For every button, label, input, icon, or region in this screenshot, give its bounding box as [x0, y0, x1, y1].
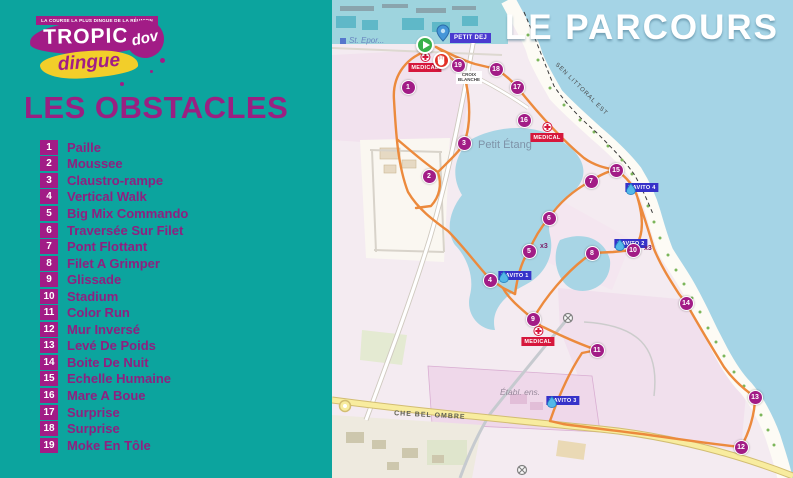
obstacle-name: Traversée Sur Filet [67, 223, 183, 238]
poster: LA COURSE LA PLUS DINGUE DE LA RÉUNION T… [0, 0, 793, 478]
obstacle-number-badge: 12 [40, 322, 58, 337]
course-marker-12: 12 [734, 440, 749, 455]
course-marker-11: 11 [590, 343, 605, 358]
obstacle-item-8: 8Filet A Grimper [40, 255, 188, 272]
obstacle-item-17: 17Surprise [40, 404, 188, 421]
location-pin-icon [436, 24, 450, 42]
obstacle-name: Surprise [67, 421, 120, 436]
obstacle-name: Pont Flottant [67, 239, 147, 254]
obstacle-number-badge: 3 [40, 173, 58, 188]
obstacle-item-6: 6Traversée Sur Filet [40, 222, 188, 239]
ravito-badge-3: RAVITO 3 [546, 396, 579, 405]
medical-cross-icon [533, 326, 543, 336]
medical-badge-2: MEDICAL [530, 122, 563, 142]
course-marker-10: 10 [626, 243, 641, 258]
obstacle-number-badge: 19 [40, 438, 58, 453]
obstacle-item-9: 9Glissade [40, 271, 188, 288]
stop-hand-icon [433, 52, 450, 69]
course-marker-16: 16 [517, 113, 532, 128]
poi-square-icon [340, 38, 346, 44]
obstacle-name: Paille [67, 140, 101, 155]
obstacle-name: Moussee [67, 156, 123, 171]
medical-badge-3: MEDICAL [521, 326, 554, 346]
ravito-badge-1: RAVITO 1 [498, 271, 531, 280]
course-marker-13: 13 [748, 390, 763, 405]
obstacle-name: Echelle Humaine [67, 371, 171, 386]
obstacle-name: Surprise [67, 405, 120, 420]
course-marker-18: 18 [489, 62, 504, 77]
obstacle-number-badge: 2 [40, 156, 58, 171]
course-marker-5: 5 [522, 244, 537, 259]
obstacle-name: Color Run [67, 305, 130, 320]
obstacles-panel: LA COURSE LA PLUS DINGUE DE LA RÉUNION T… [0, 0, 332, 478]
obstacle-item-10: 10Stadium [40, 288, 188, 305]
obstacle-number-badge: 8 [40, 256, 58, 271]
obstacle-number-badge: 14 [40, 355, 58, 370]
medical-label: MEDICAL [530, 133, 563, 142]
obstacles-title: LES OBSTACLES [24, 90, 314, 126]
obstacle-item-13: 13Levé De Poids [40, 338, 188, 355]
obstacle-name: Stadium [67, 289, 118, 304]
medical-cross-icon [542, 122, 552, 132]
obstacle-name: Filet A Grimper [67, 256, 160, 271]
obstacle-item-5: 5Big Mix Commando [40, 205, 188, 222]
marker-multiplier: x3 [644, 245, 652, 252]
obstacle-name: Moke En Tôle [67, 438, 151, 453]
obstacle-name: Mare A Boue [67, 388, 146, 403]
obstacle-number-badge: 4 [40, 189, 58, 204]
course-marker-7: 7 [584, 174, 599, 189]
obstacle-number-badge: 11 [40, 305, 58, 320]
course-marker-4: 4 [483, 273, 498, 288]
petit-etang-label: Petit Étang [478, 139, 532, 151]
obstacle-name: Glissade [67, 272, 121, 287]
course-marker-9: 9 [526, 312, 541, 327]
petit-dej-badge: PETIT DEJ [450, 33, 491, 43]
croix-blanche-label: CROIX BLANCHE [456, 71, 482, 84]
course-marker-8: 8 [585, 246, 600, 261]
splash-dot [160, 58, 165, 63]
obstacle-number-badge: 17 [40, 405, 58, 420]
obstacle-name: Levé De Poids [67, 338, 156, 353]
course-marker-6: 6 [542, 211, 557, 226]
course-marker-19: 19 [451, 58, 466, 73]
obstacle-number-badge: 5 [40, 206, 58, 221]
tropica-dingue-logo: LA COURSE LA PLUS DINGUE DE LA RÉUNION T… [0, 0, 200, 95]
obstacle-item-3: 3Claustro-rampe [40, 172, 188, 189]
obstacle-item-1: 1Paille [40, 139, 188, 156]
obstacle-name: Vertical Walk [67, 189, 147, 204]
obstacle-name: Mur Inversé [67, 322, 140, 337]
start-icon [416, 36, 434, 54]
obstacles-list: 1Paille2Moussee3Claustro-rampe4Vertical … [40, 139, 188, 453]
ravito-badge-4: RAVITO 4 [625, 183, 658, 192]
obstacle-number-badge: 9 [40, 272, 58, 287]
obstacle-number-badge: 7 [40, 239, 58, 254]
splash-dot [150, 70, 153, 73]
course-marker-2: 2 [422, 169, 437, 184]
obstacle-item-19: 19Moke En Tôle [40, 437, 188, 454]
obstacle-number-badge: 18 [40, 421, 58, 436]
marker-multiplier: x3 [540, 243, 548, 250]
course-marker-17: 17 [510, 80, 525, 95]
obstacle-item-18: 18Surprise [40, 420, 188, 437]
obstacle-number-badge: 1 [40, 140, 58, 155]
obstacle-item-14: 14Boite De Nuit [40, 354, 188, 371]
course-map: LE PARCOURS PETIT DEJ St. Epor... [332, 0, 793, 478]
obstacle-name: Big Mix Commando [67, 206, 188, 221]
obstacle-item-2: 2Moussee [40, 156, 188, 173]
obstacle-item-4: 4Vertical Walk [40, 189, 188, 206]
obstacle-item-15: 15Echelle Humaine [40, 371, 188, 388]
obstacle-number-badge: 15 [40, 371, 58, 386]
course-marker-14: 14 [679, 296, 694, 311]
obstacle-name: Boite De Nuit [67, 355, 149, 370]
obstacle-number-badge: 6 [40, 223, 58, 238]
obstacle-number-badge: 10 [40, 289, 58, 304]
obstacle-item-11: 11Color Run [40, 304, 188, 321]
st-epor-label: St. Epor... [340, 36, 384, 45]
obstacle-item-16: 16Mare A Boue [40, 387, 188, 404]
medical-label: MEDICAL [521, 337, 554, 346]
course-marker-1: 1 [401, 80, 416, 95]
obstacle-number-badge: 16 [40, 388, 58, 403]
splash-dot [120, 82, 124, 86]
etabl-ens-label: Établ. ens. [500, 387, 540, 397]
course-marker-3: 3 [457, 136, 472, 151]
course-marker-15: 15 [609, 163, 624, 178]
obstacle-name: Claustro-rampe [67, 173, 163, 188]
obstacle-number-badge: 13 [40, 338, 58, 353]
map-title: LE PARCOURS [505, 8, 779, 48]
obstacle-item-7: 7Pont Flottant [40, 238, 188, 255]
obstacle-item-12: 12Mur Inversé [40, 321, 188, 338]
